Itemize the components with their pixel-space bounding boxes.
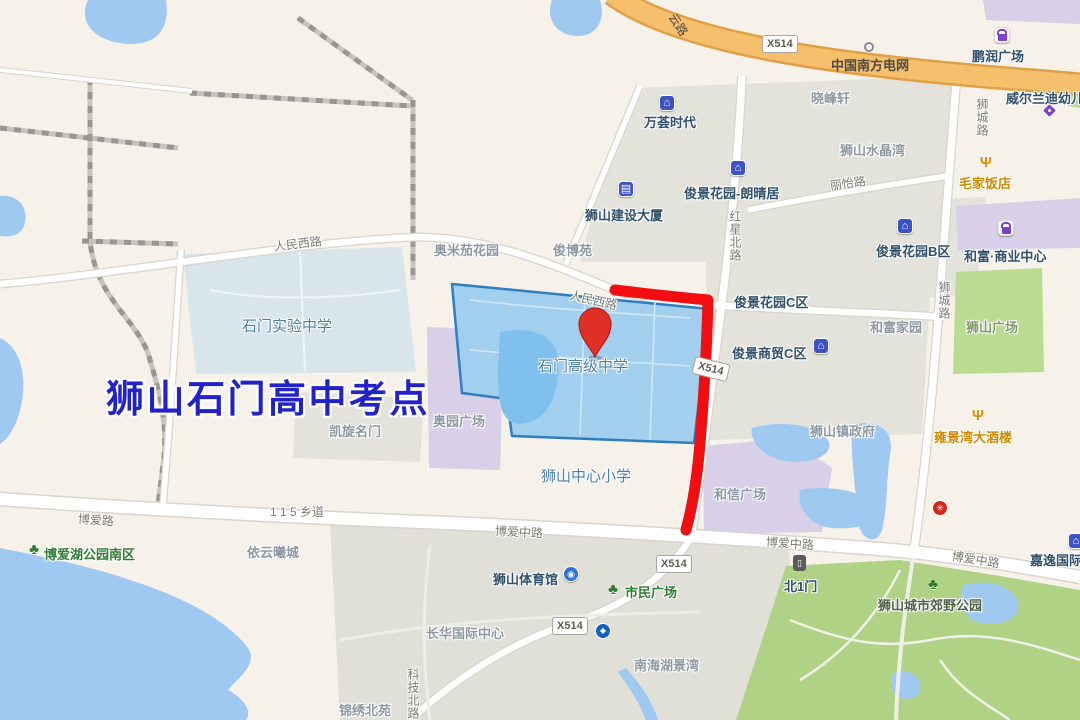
poi-wanhui-times[interactable]: 万荟时代 [644,112,696,131]
label-overlay: 云路中国南方电网鹏润广场威尔兰迪幼儿园晓峰轩万荟时代狮山水晶湾毛家饭店狮城路俊景… [0,0,1080,720]
road-renmin-west-road-1: 人民西路 [273,232,323,255]
poi-china-southern-power-grid[interactable]: 中国南方电网 [831,55,909,74]
badge-x514-southwest: X514 [552,617,588,635]
area-xiaofengxuan: 晓峰轩 [811,88,850,107]
area-junboyuan: 俊博苑 [553,240,592,259]
poi-shishan-country-park[interactable]: 狮山城市郊野公园 [878,595,982,614]
poi-hefu-business-center[interactable]: 和富·商业中心 [964,246,1046,265]
jianshe-building-icon[interactable]: ▤ [618,181,634,197]
junjing-b-house-icon[interactable]: ⌂ [897,218,913,234]
area-shishan-town-gov: 狮山镇政府 [810,421,875,440]
poi-junjing-garden-b[interactable]: 俊景花园B区 [876,241,950,260]
area-aomijia-garden: 奥米茄花园 [434,240,499,259]
poi-boaihu-park-south[interactable]: 博爱湖公园南区 [44,544,135,563]
area-changhua-intl-center: 长华国际中心 [426,623,504,642]
poi-junjing-langqingju[interactable]: 俊景花园-朗晴居 [684,183,779,202]
maojia-fork-icon[interactable]: Ψ [978,154,994,170]
area-aoyuan-plaza: 奥园广场 [433,411,485,430]
poi-junjing-garden-c[interactable]: 俊景花园C区 [734,292,808,311]
badge-x514-highway: X514 [762,35,798,53]
pengrun-bag-icon[interactable] [994,27,1010,43]
road-boai-middle-road-3: 博爱中路 [951,547,1001,571]
area-shishan-plaza: 狮山广场 [966,317,1018,336]
poi-north-gate-1[interactable]: 北1门 [784,576,817,595]
badge-x514-mid: X514 [691,356,730,382]
power-grid-node-icon [864,42,874,52]
yongjingwan-fork-icon[interactable]: Ψ [970,407,986,423]
badge-x514-boai: X514 [656,555,692,573]
road-boai-road: 博爱路 [77,510,114,529]
poi-jiayi-international[interactable]: 嘉逸国际 [1030,550,1080,569]
area-hexin-plaza: 和信广场 [714,484,766,503]
shangmao-c-house-icon[interactable]: ⌂ [813,338,829,354]
road-hongxing-north-road: 红星北路 [727,210,744,262]
title-exam-site: 狮山石门高中考点 [106,368,430,423]
wanhui-house-icon[interactable]: ⌂ [659,95,675,111]
campus-shishan-central-primary: 狮山中心小学 [541,465,631,486]
red-poi-badge-icon[interactable]: ✳ [932,500,948,516]
campus-shimen-experimental: 石门实验中学 [242,315,332,336]
area-shishan-crystal-bay: 狮山水晶湾 [840,140,905,159]
gym-stadium-icon[interactable]: ◉ [563,566,579,582]
road-shicheng-road-north: 狮城路 [974,98,991,137]
poi-junjing-shangmao-c[interactable]: 俊景商贸C区 [732,343,806,362]
bank-icon[interactable]: ◆ [595,623,611,639]
shimin-tree-icon[interactable]: ♣ [605,581,621,597]
road-label-yunlu: 云路 [665,10,692,39]
road-shicheng-road-south: 狮城路 [936,281,953,320]
langqingju-house-icon[interactable]: ⌂ [730,160,746,176]
hefu-bag-icon[interactable] [998,220,1014,236]
campus-shimen-senior-high[interactable]: 石门高级中学 [538,355,628,376]
poi-citizen-plaza[interactable]: 市民广场 [625,582,677,601]
road-boai-middle-road-2: 博爱中路 [765,533,814,553]
area-kaixuan-mingmen: 凯旋名门 [329,421,381,440]
road-liyi-road: 丽怡路 [829,172,867,194]
area-hefu-jiayuan: 和富家园 [870,317,922,336]
jiayi-house-icon[interactable]: ⌂ [1068,533,1080,549]
map-viewport[interactable]: 云路中国南方电网鹏润广场威尔兰迪幼儿园晓峰轩万荟时代狮山水晶湾毛家饭店狮城路俊景… [0,0,1080,720]
north-gate-door-icon[interactable]: ▯ [793,555,806,571]
road-keji-north-road: 科技北路 [405,668,422,720]
park-tree-icon[interactable]: ♣ [925,576,941,592]
area-jinxiu-beiyuan: 锦绣北苑 [339,700,391,719]
road-115-township: 1 1 5 乡道 [270,503,324,520]
poi-pengrun-plaza[interactable]: 鹏润广场 [972,46,1024,65]
area-yiyun-xicheng: 依云曦城 [247,542,299,561]
road-boai-middle-road-1: 博爱中路 [495,522,544,541]
poi-maojia-restaurant[interactable]: 毛家饭店 [959,173,1011,192]
poi-weierlandi-kindergarten[interactable]: 威尔兰迪幼儿园 [1006,88,1080,107]
road-renmin-west-road-2: 人民西路 [568,286,619,313]
poi-shishan-gym[interactable]: 狮山体育馆 [493,569,558,588]
poi-shishan-jianshe-building[interactable]: 狮山建设大厦 [585,205,663,224]
poi-yongjingwan-restaurant[interactable]: 雍景湾大酒楼 [934,427,1012,446]
boaihu-tree-icon[interactable]: ♣ [26,541,42,557]
area-nanhai-lakeview: 南海湖景湾 [634,655,699,674]
